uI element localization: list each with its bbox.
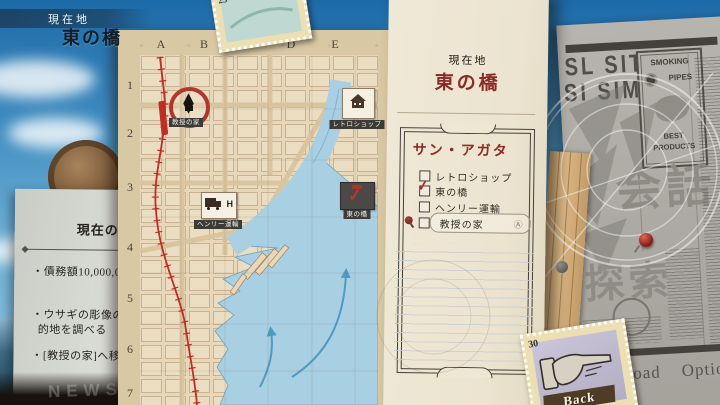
goal-line: 的地を調べる (38, 321, 107, 338)
map-panel: 教授の家 レトロショップ H ヘンリー運輸 ✓ 東の橋 A B C D E 1 … (118, 30, 390, 405)
checklist-item-label: レトロショップ (435, 169, 512, 185)
goals-heading: 現在の (77, 219, 119, 238)
checklist-title: サン・アガタ (413, 139, 509, 160)
grid-col-a: A (154, 37, 168, 52)
truck-letter: H (227, 199, 234, 209)
gray-tack (556, 261, 568, 273)
marker-henry-transport[interactable]: H (201, 192, 237, 219)
map-artwork: 教授の家 レトロショップ H ヘンリー運輸 ✓ 東の橋 (140, 55, 378, 405)
checklist-item-professors-house[interactable]: 教授の家 Ⓐ (386, 215, 546, 234)
newsprint-column (665, 248, 704, 340)
grid-row-4: 4 (123, 240, 137, 255)
red-pushpin (639, 233, 653, 247)
graduation-cap-icon (182, 98, 196, 112)
truck-icon (205, 198, 225, 211)
stamp-image (220, 0, 302, 43)
back-stamp-value: 30 (527, 338, 539, 350)
check-icon: ✓ (416, 178, 430, 196)
checklist-item-label: 教授の家 (440, 216, 484, 232)
marker-retro-shop[interactable] (342, 88, 375, 119)
pipe-icon (644, 73, 658, 87)
location-name: 東の橋 (62, 24, 122, 50)
back-button[interactable]: 30 Back (520, 318, 639, 405)
goal-line: ・[教授の家]へ移動 (31, 347, 131, 364)
frame-ornament-top (439, 124, 495, 135)
grid-row-2: 2 (123, 126, 137, 141)
marker-label-east-bridge: 東の橋 (344, 210, 371, 219)
journal-divider (397, 112, 535, 115)
house-icon (350, 94, 366, 109)
hand-with-pipe-illustration (652, 91, 692, 126)
ad-text: SMOKING (638, 56, 700, 68)
visited-check-icon: ✓ (347, 185, 363, 206)
journal-location-name: 東の橋 (388, 67, 548, 96)
grid-row-5: 5 (123, 291, 137, 306)
checkbox-unchecked[interactable] (419, 201, 430, 212)
grid-row-1: 1 (123, 78, 137, 93)
selected-item-outline[interactable]: 教授の家 Ⓐ (430, 212, 531, 233)
grid-row-6: 6 (123, 342, 137, 357)
game-screen: 現在の ・債務額10,000,000 ・ウサギの彫像の配 的地を調べる ・[教授… (0, 0, 720, 405)
grid-col-e: E (328, 37, 342, 52)
newspaper-masthead-ghost: NEWS (48, 380, 124, 403)
marker-east-bridge[interactable]: ✓ (340, 182, 375, 210)
cloud (0, 60, 95, 98)
grid-col-b: B (197, 37, 211, 52)
checkbox-unchecked[interactable] (419, 217, 430, 228)
marker-label-retro-shop: レトロショップ (330, 120, 385, 129)
grid-row-3: 3 (123, 180, 137, 195)
options-button[interactable]: Options (681, 358, 720, 381)
grid-row-7: 7 (123, 386, 137, 401)
marker-label-professors-house: 教授の家 (169, 118, 203, 127)
checklist-item-label: 東の橋 (435, 184, 468, 199)
selection-pin-icon (405, 216, 413, 224)
gamepad-a-button-hint: Ⓐ (514, 218, 523, 231)
marker-label-henry-transport: ヘンリー運輸 (194, 220, 242, 229)
